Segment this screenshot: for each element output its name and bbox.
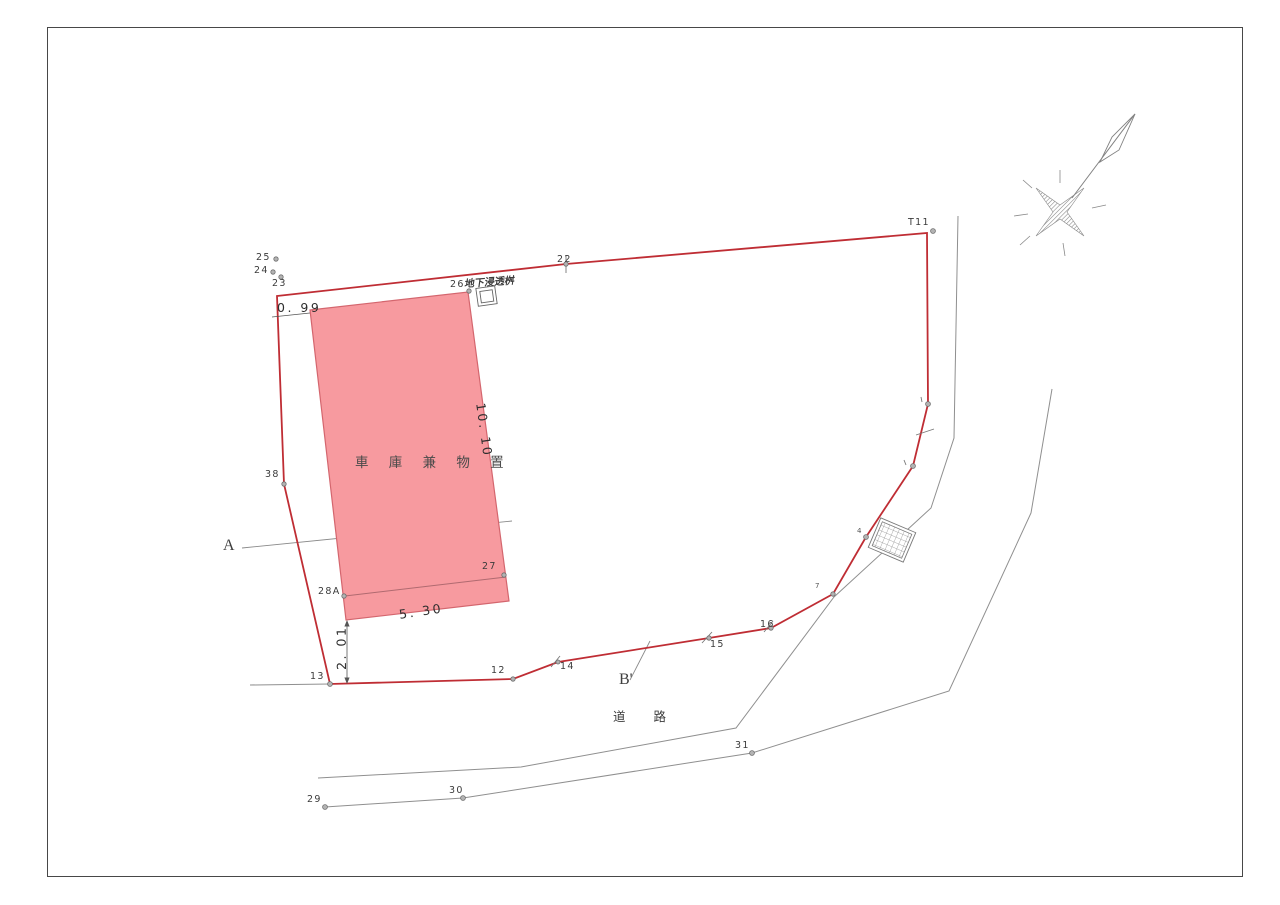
- drain-grating-icon: [868, 518, 915, 562]
- building-label: 車 庫 兼 物 置: [355, 451, 512, 471]
- tick-marks: [551, 255, 934, 667]
- point-label-14: 14: [560, 661, 575, 672]
- point-label-t11: T11: [908, 217, 930, 228]
- point-label-22: 22: [557, 254, 572, 265]
- point-label-28a: 28A: [318, 586, 341, 597]
- point-label-25: 25: [256, 252, 271, 263]
- point-label-16: 16: [760, 619, 775, 630]
- section-line-b: [630, 641, 650, 680]
- point-label-15: 15: [710, 639, 725, 650]
- point-label-24: 24: [254, 265, 269, 276]
- dimension-left-offset: 0. 99: [277, 300, 321, 315]
- section-a-label: A: [223, 537, 235, 555]
- point-label-30: 30: [449, 785, 464, 796]
- point-label-27: 27: [482, 561, 497, 572]
- point-label-4: 4: [857, 527, 861, 535]
- dimension-south-offset: 2. 01: [334, 626, 349, 670]
- point-label-31: 31: [735, 740, 750, 751]
- point-label-38: 38: [265, 469, 280, 480]
- section-b-label: B': [619, 671, 633, 689]
- point-label-29: 29: [307, 794, 322, 805]
- road-label: 道 路: [613, 706, 678, 725]
- site-plan-drawing: [0, 0, 1280, 905]
- point-label-13: 13: [310, 671, 325, 682]
- sheet-border: [48, 28, 1243, 877]
- north-arrow-icon: [1014, 114, 1135, 256]
- point-label-23: 23: [272, 278, 287, 289]
- site-plan-page: 25 24 23 22 26 地下浸透桝 T11 38 27 28A 13 12…: [0, 0, 1280, 905]
- point-label-7: 7: [815, 582, 819, 590]
- point-label-12: 12: [491, 665, 506, 676]
- point-label-26: 26: [450, 279, 465, 290]
